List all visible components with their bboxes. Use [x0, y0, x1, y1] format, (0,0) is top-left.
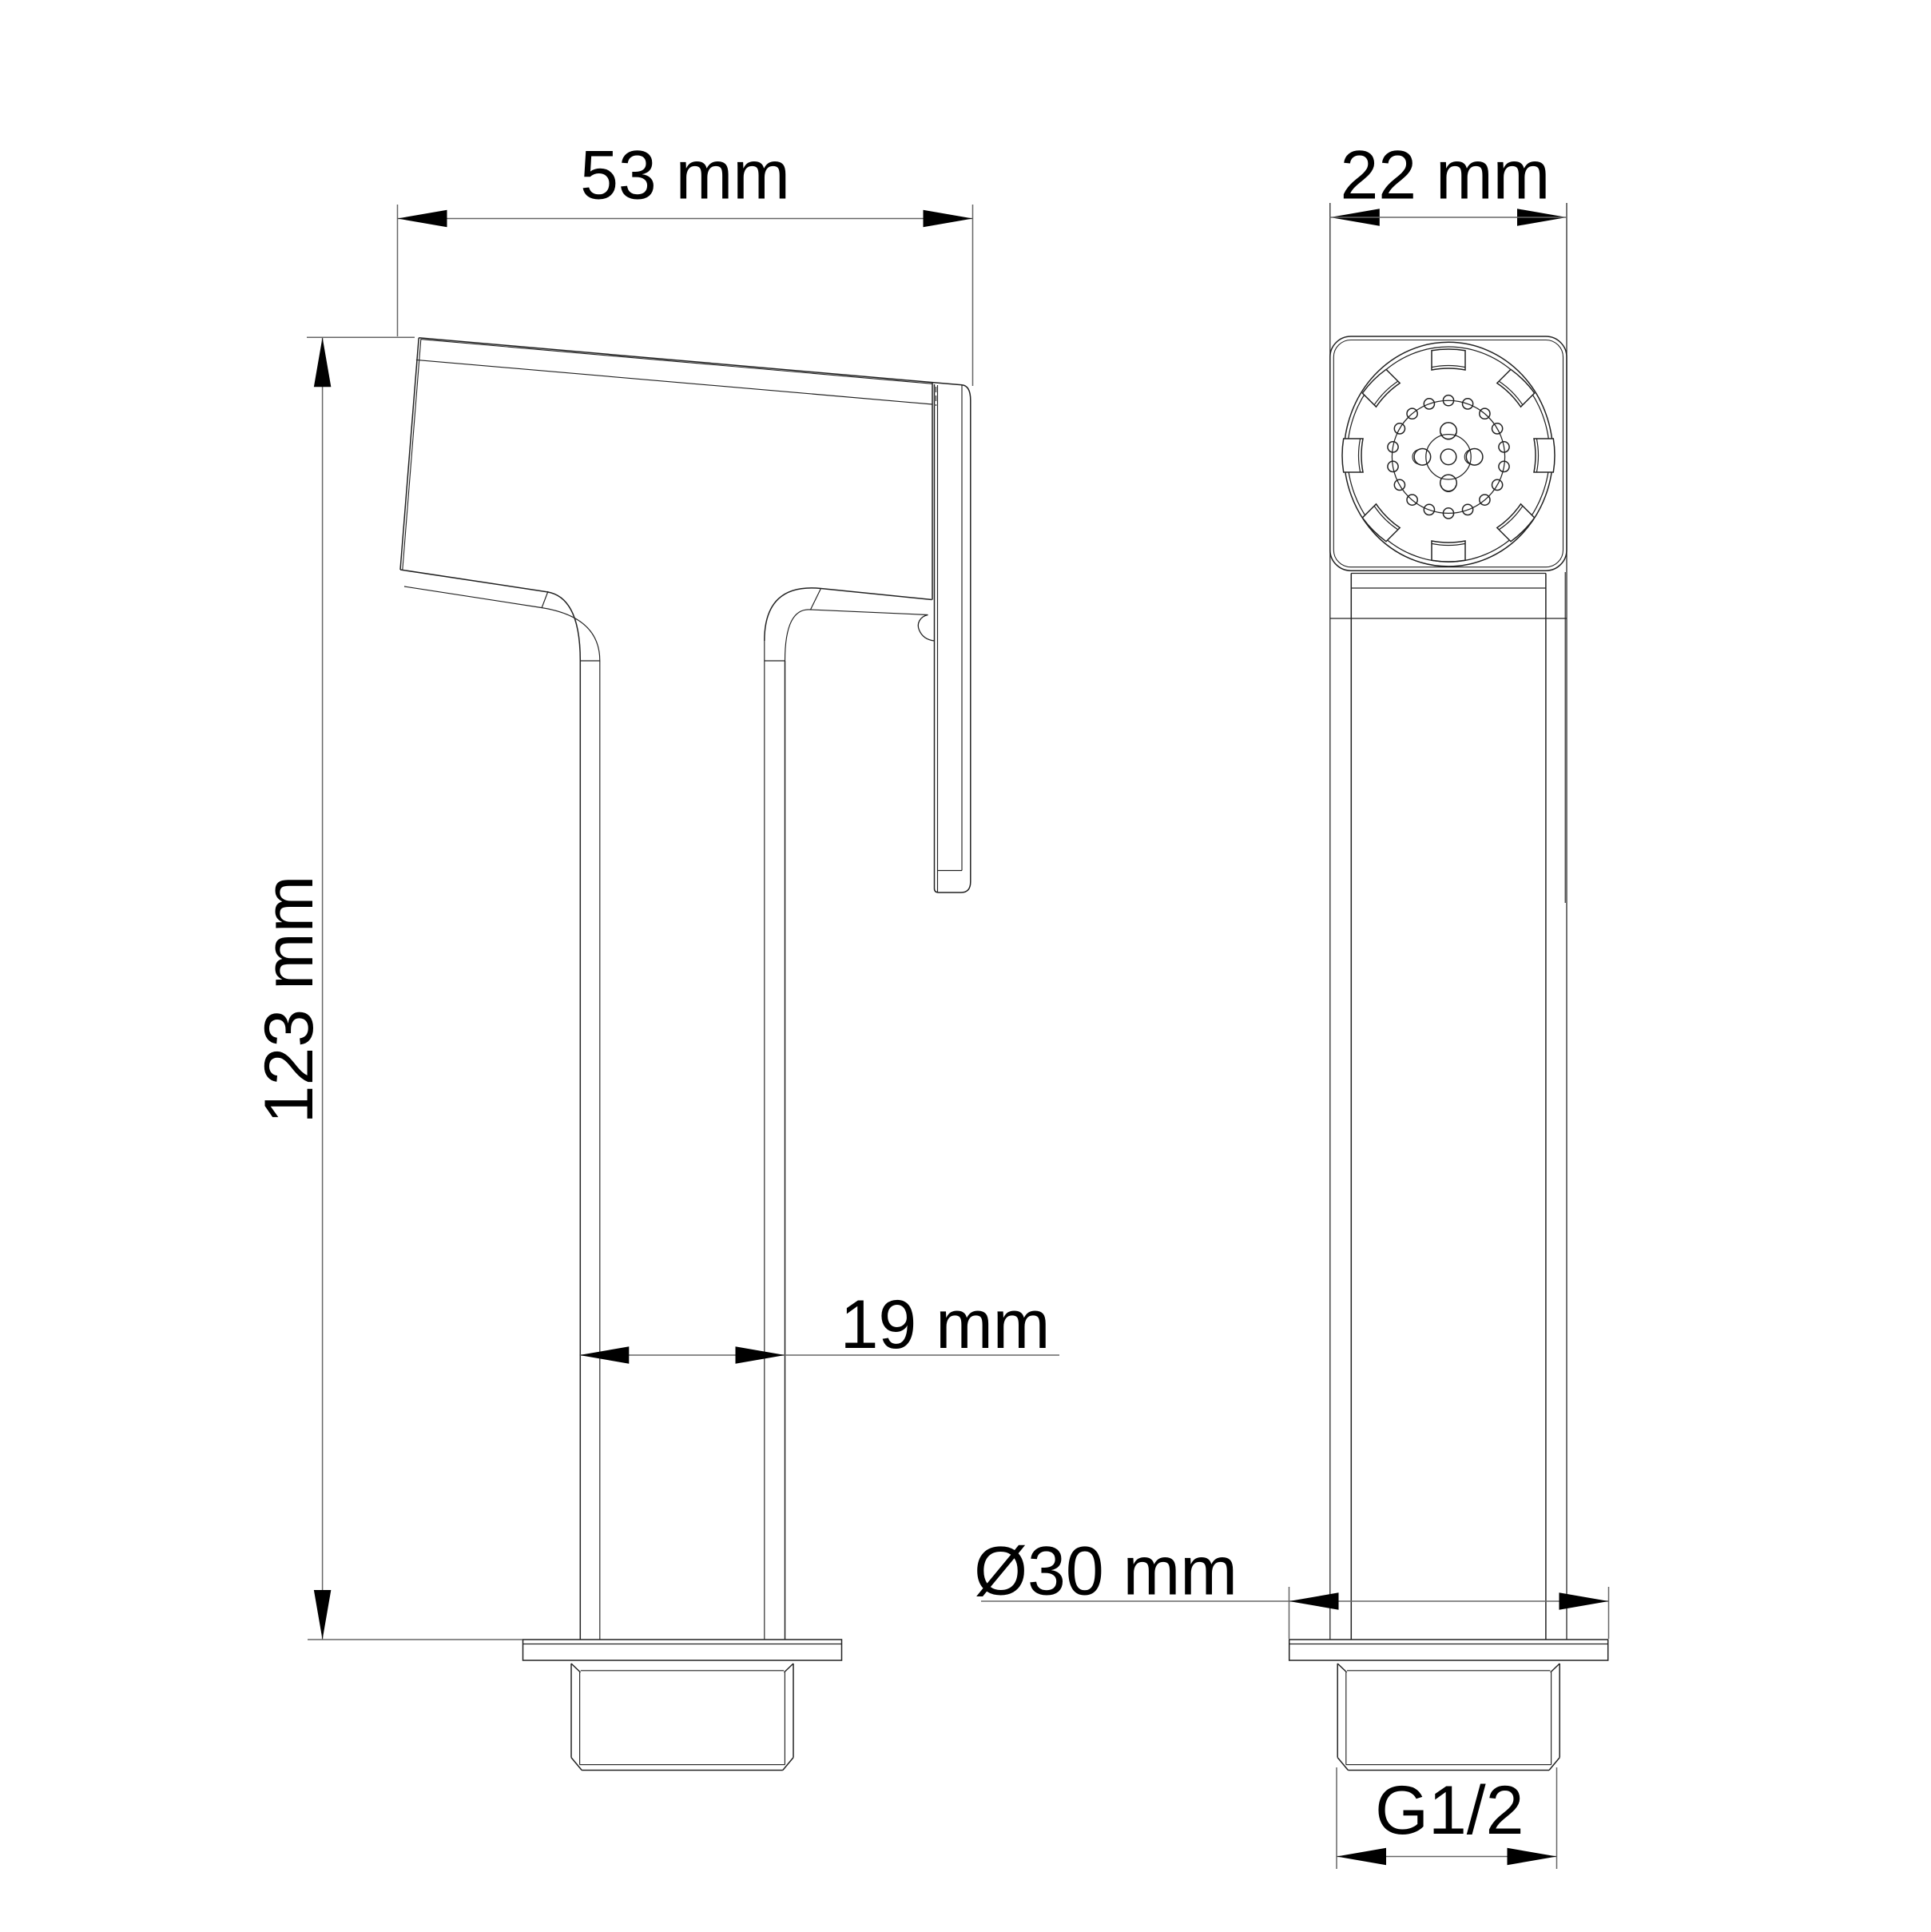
svg-text:19 mm: 19 mm [840, 1286, 1051, 1363]
svg-text:123 mm: 123 mm [251, 876, 328, 1124]
svg-text:G1/2: G1/2 [1375, 1772, 1524, 1849]
svg-text:22 mm: 22 mm [1340, 137, 1550, 214]
svg-text:53 mm: 53 mm [580, 137, 790, 214]
svg-text:Ø30 mm: Ø30 mm [974, 1533, 1238, 1610]
